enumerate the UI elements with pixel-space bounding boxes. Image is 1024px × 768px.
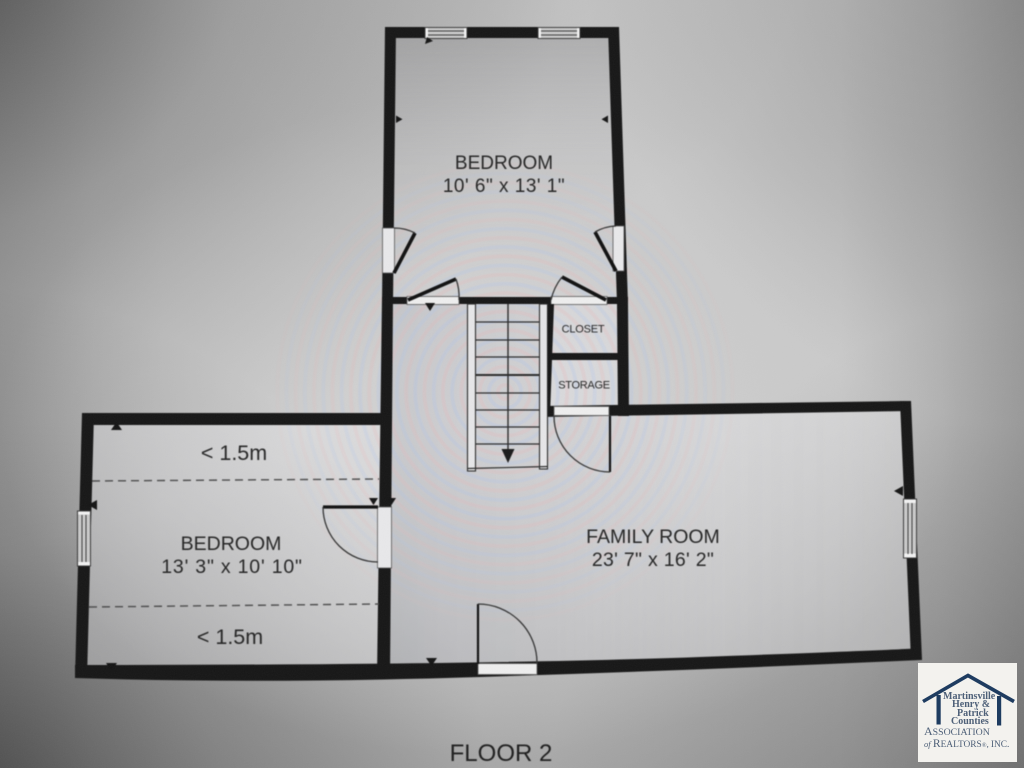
svg-text:BEDROOM: BEDROOM: [455, 153, 553, 174]
svg-text:< 1.5m: < 1.5m: [197, 625, 263, 649]
svg-text:23' 7" x 16' 2": 23' 7" x 16' 2": [592, 549, 714, 571]
svg-text:CLOSET: CLOSET: [562, 324, 605, 336]
svg-text:FLOOR 2: FLOOR 2: [450, 740, 553, 767]
svg-text:BEDROOM: BEDROOM: [181, 533, 282, 555]
svg-text:< 1.5m: < 1.5m: [201, 441, 267, 465]
svg-text:FAMILY ROOM: FAMILY ROOM: [586, 526, 720, 548]
svg-text:10' 6" x 13' 1": 10' 6" x 13' 1": [443, 176, 565, 197]
svg-text:13' 3" x 10' 10": 13' 3" x 10' 10": [161, 556, 302, 578]
svg-text:STORAGE: STORAGE: [558, 380, 610, 392]
